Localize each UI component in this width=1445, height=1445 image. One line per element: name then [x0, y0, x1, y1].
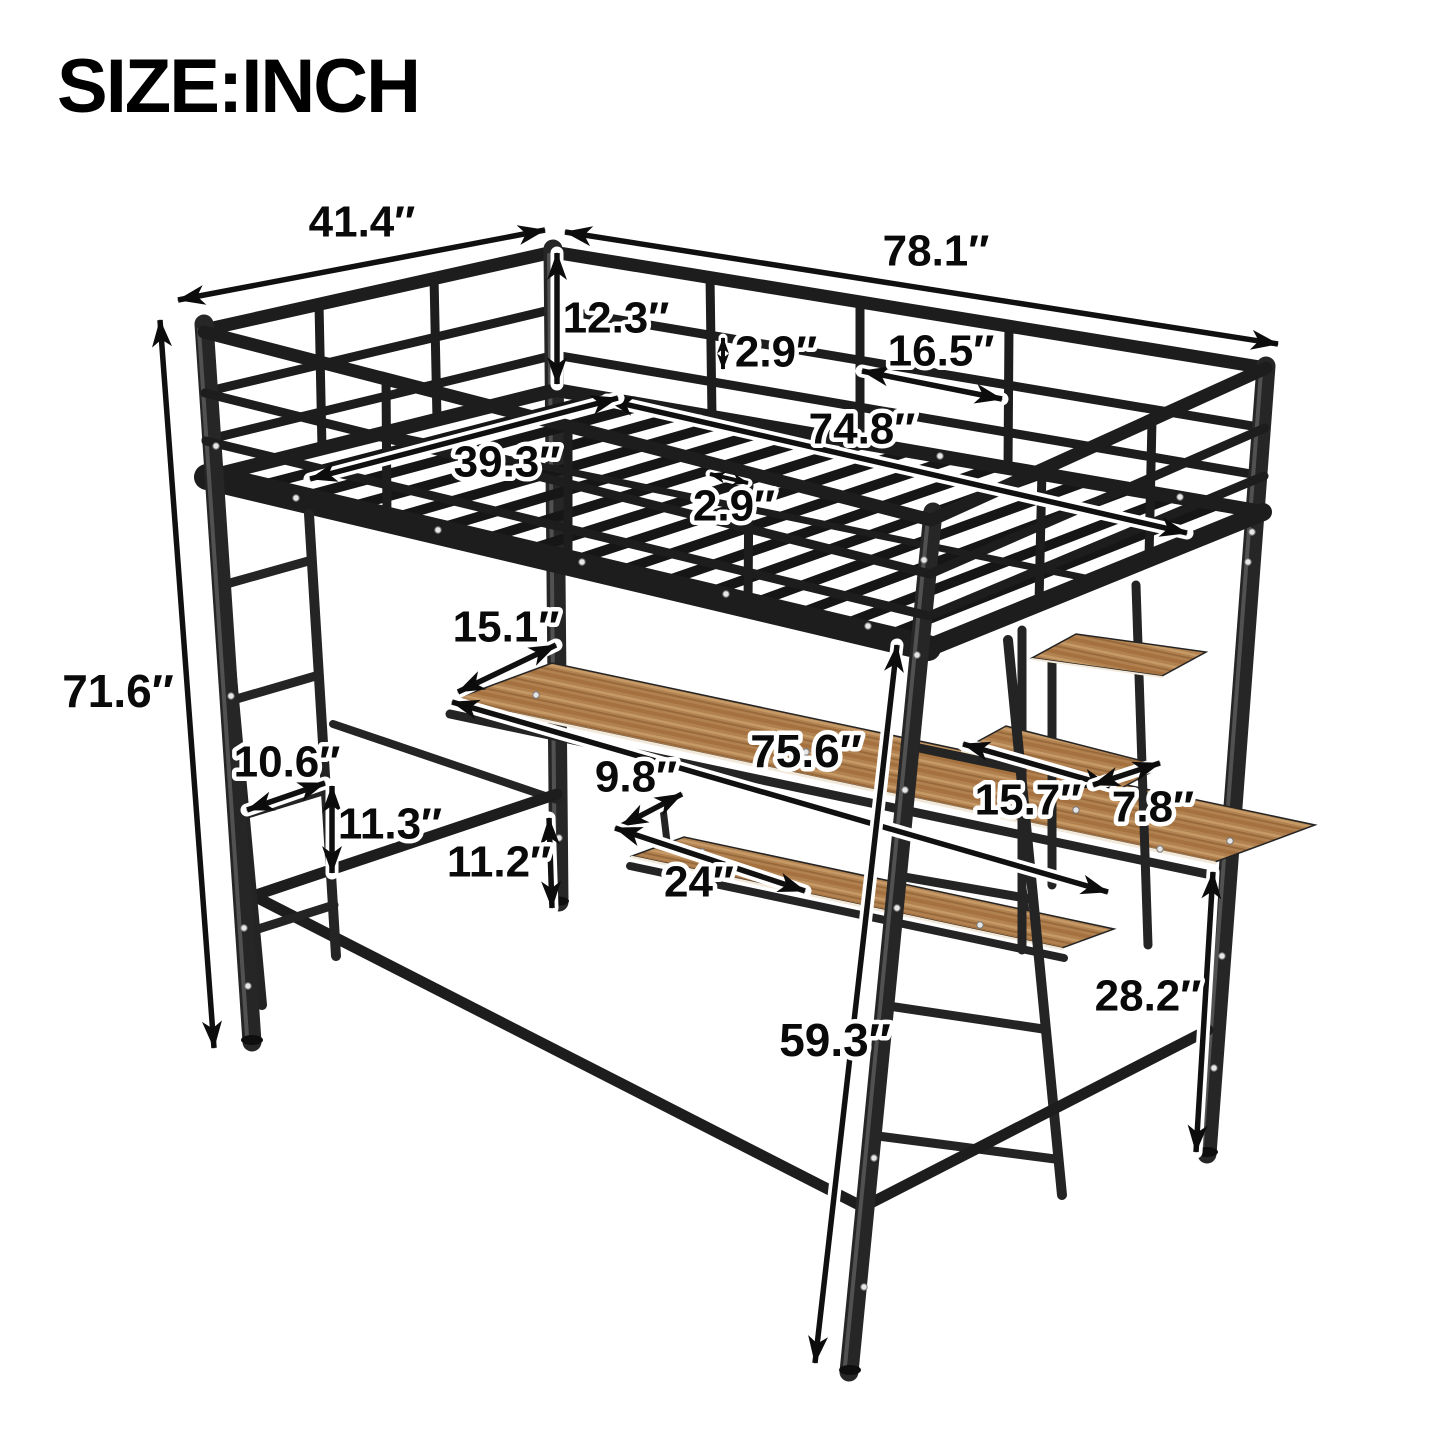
dimension-label-guardrail-height: 12.3″	[563, 294, 670, 343]
dimension-label-bed-inner-width: 39.3″	[454, 438, 561, 487]
top-shelf	[1032, 634, 1206, 677]
dimension-top-width: 41.4″	[178, 198, 545, 301]
dimension-label-desk-floor-height: 28.2″	[1095, 972, 1202, 1021]
dimension-rail-gap: 2.9″	[723, 328, 817, 377]
dimension-desk-floor-height: 28.2″	[1095, 872, 1213, 1152]
dimension-label-desk-length: 75.6″	[750, 725, 862, 777]
dimension-label-tray-depth: 9.8″	[595, 753, 677, 802]
dimension-overall-height: 71.6″	[62, 320, 214, 1048]
loft-bed-dimension-diagram: SIZE:INCH 41.4″78.1″12.3″2.9″16.5″74.8″3…	[0, 0, 1445, 1445]
dimension-label-bed-inner-length: 74.8″	[809, 405, 916, 454]
dimension-label-shelf-width: 15.7″	[975, 776, 1082, 825]
dimension-tray-depth: 9.8″	[595, 753, 682, 827]
dimension-label-top-length: 78.1″	[883, 227, 990, 276]
dimension-diagram-page: SIZE:INCH 41.4″78.1″12.3″2.9″16.5″74.8″3…	[0, 0, 1445, 1445]
dimension-label-shelf-depth: 7.8″	[1112, 783, 1194, 832]
dimension-tray-height: 11.2″	[447, 818, 552, 908]
dimension-slat-gap: 2.9″	[693, 474, 775, 531]
dimension-label-desk-depth: 15.1″	[453, 603, 560, 652]
dimension-label-tray-width: 24″	[664, 858, 734, 907]
dimension-label-rail-gap: 2.9″	[735, 328, 817, 377]
dimension-label-overall-height: 71.6″	[62, 665, 174, 717]
dimension-label-rail-segment: 16.5″	[888, 327, 995, 376]
dimension-label-underbed-height: 59.3″	[779, 1014, 891, 1066]
dimension-label-slat-gap: 2.9″	[693, 482, 775, 531]
dimension-label-tray-height: 11.2″	[447, 838, 551, 887]
dimension-label-top-width: 41.4″	[309, 198, 416, 247]
diagram-title: SIZE:INCH	[57, 44, 419, 129]
dimension-label-rung-spacing: 11.3″	[338, 800, 442, 849]
dimension-label-ladder-width: 10.6″	[234, 738, 341, 787]
